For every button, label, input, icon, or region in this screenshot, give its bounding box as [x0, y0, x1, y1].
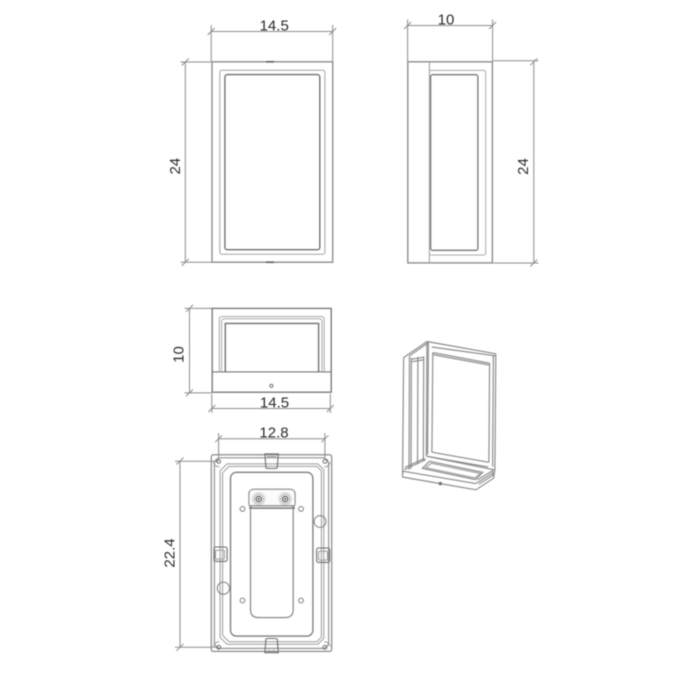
svg-text:14.5: 14.5	[260, 17, 289, 34]
svg-text:14.5: 14.5	[260, 394, 289, 411]
svg-text:12.8: 12.8	[259, 425, 288, 442]
svg-text:10: 10	[171, 346, 188, 363]
svg-text:24: 24	[515, 158, 532, 175]
svg-text:22.4: 22.4	[162, 538, 179, 567]
svg-text:10: 10	[438, 11, 455, 28]
svg-text:24: 24	[167, 158, 184, 175]
